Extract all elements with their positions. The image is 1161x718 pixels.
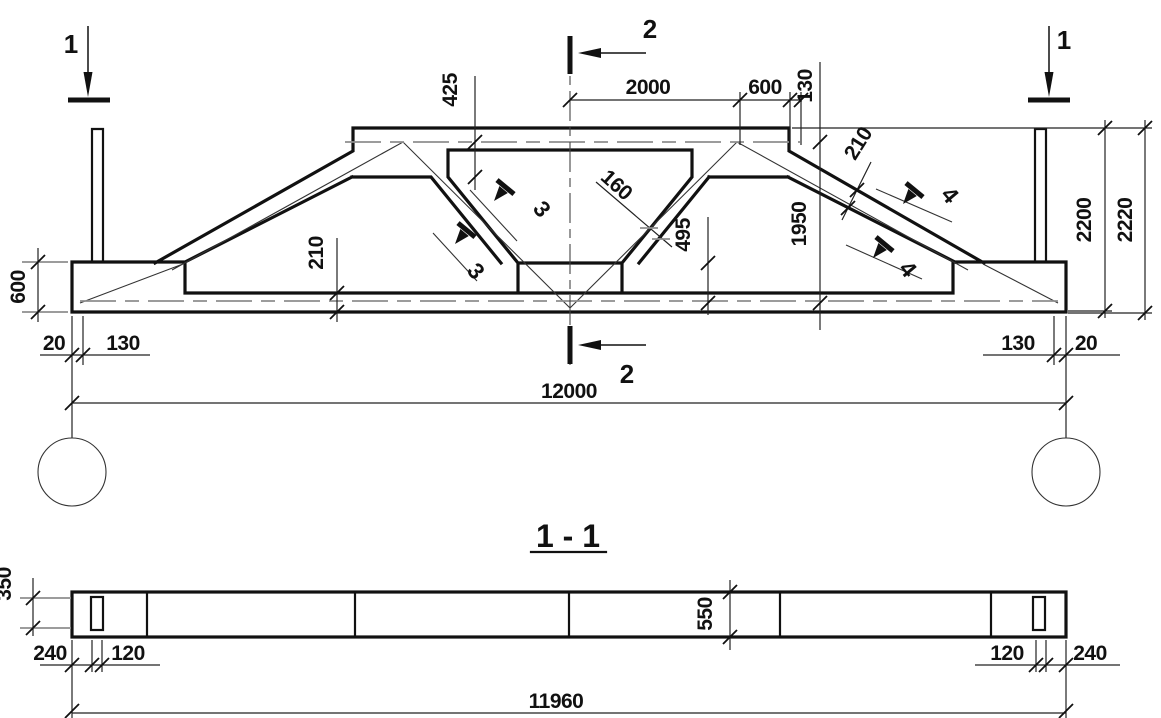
dim-130-right: 130 [1001, 332, 1035, 355]
dim-240-right: 240 [1073, 642, 1107, 665]
detail-label-4-lower: 4 [894, 256, 922, 283]
elevation-view: 1 1 2 2 3 [7, 14, 1152, 506]
beam-segment-joints [147, 592, 991, 637]
dim-600-end: 600 [7, 270, 30, 304]
dimension-ticks [31, 93, 1152, 410]
dim-130-top: 130 [794, 69, 817, 103]
dim-2000: 2000 [626, 76, 671, 99]
drawing-canvas: 1 1 2 2 3 [0, 0, 1161, 718]
dowel-pocket-left [91, 597, 103, 630]
section-1-1-view: 1 - 1 350 550 240 120 120 240 11960 [0, 518, 1120, 718]
dim-240-left: 240 [33, 642, 67, 665]
dim-2220: 2220 [1114, 198, 1137, 243]
dim-120-right: 120 [990, 642, 1024, 665]
marker-arrow-icon [578, 340, 601, 350]
section-label-1-right: 1 [1057, 25, 1071, 55]
dim-130-left: 130 [106, 332, 140, 355]
grid-bubble-right [1032, 438, 1100, 506]
truss-drawing: 1 1 2 2 3 [0, 0, 1161, 718]
truss-outline [72, 128, 1066, 312]
dim-210-chord: 210 [305, 236, 328, 270]
section-view-title: 1 - 1 [536, 518, 600, 554]
detail-marker-4-upper: 4 [876, 182, 964, 222]
dim-2200: 2200 [1073, 198, 1096, 243]
gray-extension-lines [22, 228, 670, 312]
dim-12000: 12000 [541, 380, 597, 403]
dim-120-left: 120 [111, 642, 145, 665]
dim-550: 550 [694, 597, 717, 631]
detail-label-3-upper: 3 [528, 196, 556, 223]
marker-arrow-icon [578, 48, 601, 58]
section-marker-1-right: 1 [1028, 25, 1071, 100]
dim-425: 425 [439, 72, 462, 106]
detail-marker-3-lower: 3 [433, 223, 490, 284]
dim-11960: 11960 [529, 690, 584, 713]
dim-210-slope: 210 [840, 123, 877, 164]
dim-600-deck: 600 [748, 76, 782, 99]
marker-arrow-icon [84, 72, 93, 97]
dim-20-right: 20 [1075, 332, 1097, 355]
detail-marker-4-lower: 4 [846, 237, 922, 282]
dim-20-left: 20 [43, 332, 65, 355]
section-marker-2-top: 2 [570, 14, 657, 74]
dim-350: 350 [0, 567, 16, 601]
dim-160: 160 [596, 165, 636, 205]
section-marker-1-left: 1 [64, 26, 110, 100]
detail-label-4-upper: 4 [936, 182, 964, 209]
marker-arrow-icon [1045, 72, 1054, 97]
dim-495: 495 [672, 217, 695, 251]
section-label-1-left: 1 [64, 29, 78, 59]
dim-1950: 1950 [788, 202, 811, 247]
section-label-2-top: 2 [643, 14, 657, 44]
section-label-2-bottom: 2 [620, 359, 634, 389]
grid-bubble-left [38, 438, 106, 506]
dowel-pocket-right [1033, 597, 1045, 630]
member-axis-lines [80, 142, 1058, 308]
detail-marker-3-upper: 3 [470, 180, 556, 241]
